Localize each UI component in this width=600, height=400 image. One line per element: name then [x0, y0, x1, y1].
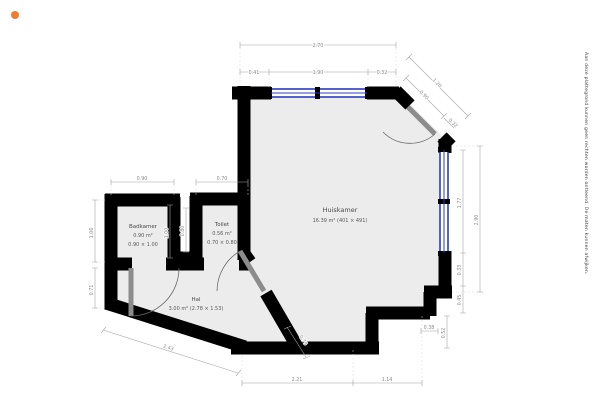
dim-label: 1.00 [164, 228, 170, 239]
dim-label: 2.70 [313, 43, 324, 49]
room-size-badkamer: 0.90 × 1.00 [128, 242, 158, 248]
marker-dot [11, 11, 19, 19]
dim-label: 0.38 [424, 325, 435, 331]
dim-label: 0.70 [217, 176, 228, 182]
room-size-toilet: 0.70 × 0.80 [207, 240, 237, 246]
dim-label: 1.20 [431, 77, 443, 89]
dim-label: 1.06 [89, 228, 95, 239]
dim-label: 1.14 [382, 377, 393, 383]
room-detail-huiskamer: 16.39 m² (401 × 491) [313, 218, 368, 224]
room-detail-hal: 3.00 m² (2.78 × 1.53) [169, 306, 224, 312]
room-area-toilet: 0.56 m² [212, 231, 232, 237]
room-label-toilet: Toilet [214, 222, 230, 228]
dim-label: 0.41 [249, 70, 260, 76]
dim-label: 2.43 [162, 344, 174, 353]
dim-label: 0.90 [137, 176, 148, 182]
dim-label: 0.71 [89, 285, 95, 296]
dim-label: 1.90 [313, 70, 324, 76]
dim-label: 2.90 [474, 215, 480, 226]
floorplan-canvas: 2.70 0.41 1.90 0.32 1.20 0.90 0.32 1.77 … [0, 0, 600, 400]
disclaimer-text: Aan deze plattegrond kunnen geen rechten… [583, 52, 588, 275]
dim-label: 0.80 [180, 226, 186, 237]
room-label-hal: Hal [191, 297, 201, 303]
room-label-huiskamer: Huiskamer [323, 206, 358, 214]
window-top [267, 87, 370, 99]
room-label-badkamer: Badkamer [129, 224, 158, 230]
dim-label: 0.32 [447, 117, 459, 129]
floorplan-page: 2.70 0.41 1.90 0.32 1.20 0.90 0.32 1.77 … [0, 0, 600, 400]
dim-label: 1.77 [457, 198, 463, 209]
room-area-badkamer: 0.90 m² [133, 233, 153, 239]
dim-label: 0.33 [457, 265, 463, 276]
shaft-gap [181, 190, 190, 252]
dim-label: 0.52 [441, 328, 447, 339]
window-right [438, 147, 450, 256]
dim-label: 0.45 [457, 295, 463, 306]
dim-label: 0.32 [377, 70, 388, 76]
dim-label: 2.21 [292, 377, 303, 383]
